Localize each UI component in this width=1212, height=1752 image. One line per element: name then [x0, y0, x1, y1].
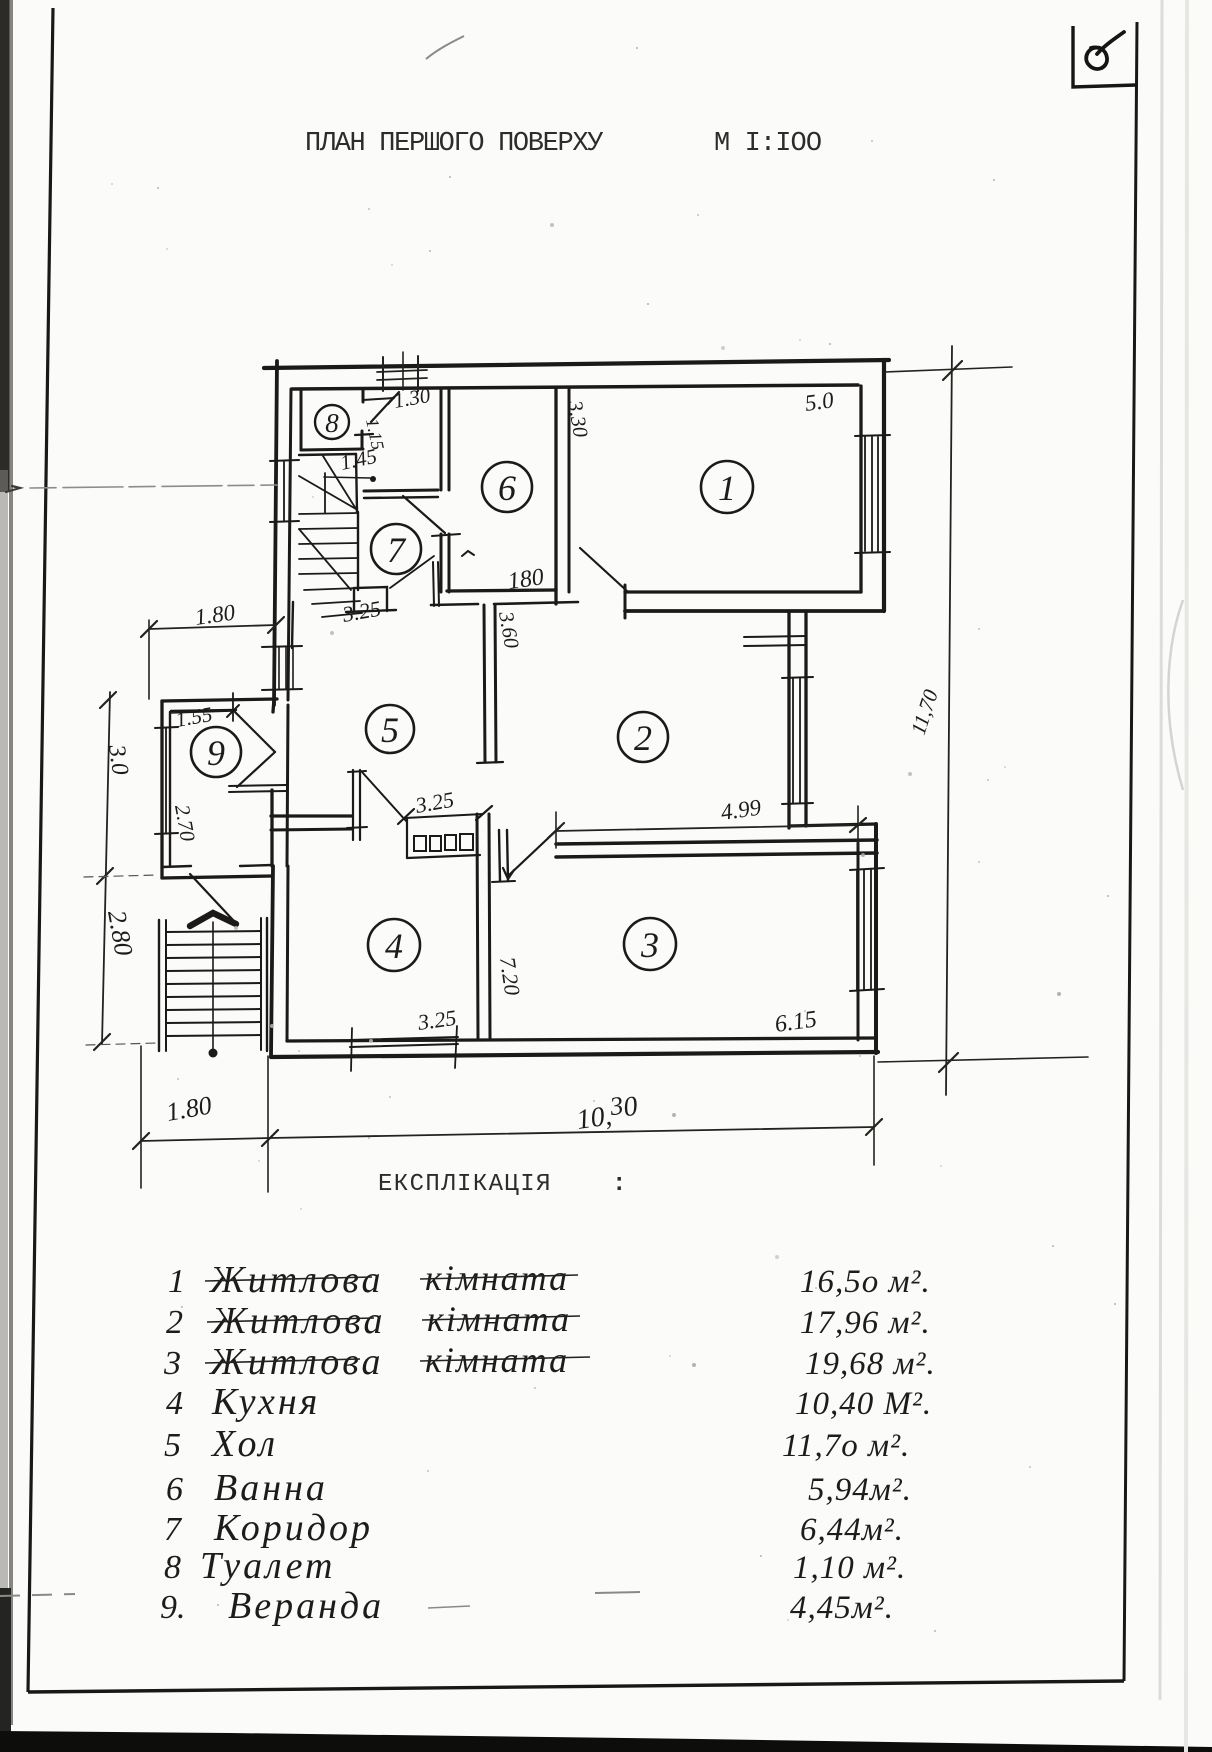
svg-text:11,7о м².: 11,7о м². — [782, 1428, 910, 1464]
svg-text:5: 5 — [381, 710, 399, 750]
svg-text:16,5о м².: 16,5о м². — [800, 1264, 931, 1300]
svg-text:5.0: 5.0 — [803, 387, 835, 416]
svg-text:5,94м².: 5,94м². — [808, 1472, 912, 1508]
svg-text:Туалет: Туалет — [200, 1545, 335, 1587]
svg-text:9: 9 — [207, 733, 225, 773]
svg-text:6,44м².: 6,44м². — [800, 1512, 904, 1548]
svg-text:2: 2 — [166, 1304, 183, 1341]
svg-text:3: 3 — [640, 925, 659, 965]
svg-text:17,96 м².: 17,96 м². — [800, 1305, 931, 1341]
svg-text:8: 8 — [325, 408, 339, 438]
svg-text:5: 5 — [164, 1427, 181, 1464]
svg-text:9.: 9. — [160, 1589, 186, 1626]
svg-text:1,10 м².: 1,10 м². — [793, 1550, 906, 1586]
svg-text:3: 3 — [163, 1345, 181, 1382]
svg-text:1: 1 — [718, 468, 736, 508]
svg-text:М І:ІОО: М І:ІОО — [714, 129, 821, 159]
svg-text:Коридор: Коридор — [213, 1507, 373, 1549]
svg-text:4,45м².: 4,45м². — [790, 1590, 894, 1626]
svg-text:ПЛАН ПЕРШОГО ПОВЕРХУ: ПЛАН ПЕРШОГО ПОВЕРХУ — [305, 129, 603, 159]
svg-text:Веранда: Веранда — [228, 1585, 384, 1627]
svg-text:7: 7 — [164, 1511, 183, 1548]
svg-text::: : — [612, 1171, 626, 1198]
svg-text:ЕКСПЛІКАЦІЯ: ЕКСПЛІКАЦІЯ — [378, 1171, 552, 1198]
svg-text:19,68 м².: 19,68 м². — [805, 1346, 936, 1382]
svg-text:180: 180 — [506, 564, 545, 595]
svg-text:7.20: 7.20 — [495, 955, 525, 997]
svg-text:2: 2 — [634, 718, 652, 758]
svg-text:4: 4 — [166, 1385, 183, 1422]
svg-text:6: 6 — [166, 1471, 183, 1508]
svg-text:7: 7 — [387, 530, 407, 570]
svg-text:8: 8 — [164, 1549, 181, 1586]
svg-text:6: 6 — [498, 468, 516, 508]
svg-text:10,40 М².: 10,40 М². — [795, 1386, 932, 1422]
svg-text:Хол: Хол — [210, 1423, 278, 1465]
svg-text:Ванна: Ванна — [214, 1467, 328, 1509]
svg-text:4: 4 — [385, 926, 403, 966]
svg-text:1: 1 — [168, 1263, 185, 1300]
svg-text:Кухня: Кухня — [211, 1381, 320, 1423]
svg-text:3.0: 3.0 — [103, 742, 133, 776]
